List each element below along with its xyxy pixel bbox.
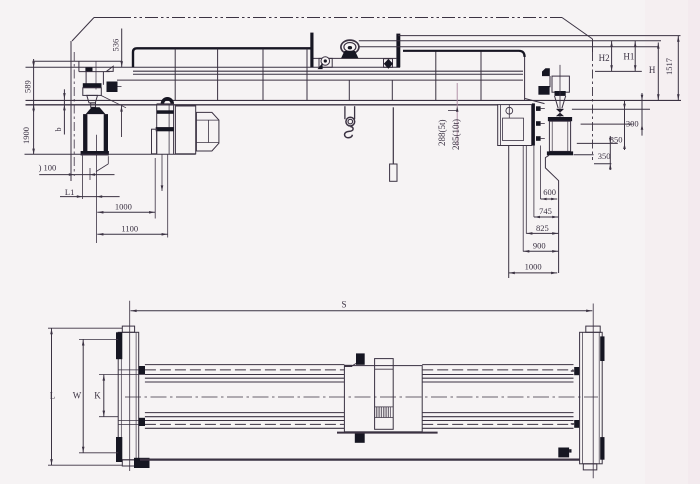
svg-text:1000: 1000 xyxy=(525,261,542,271)
svg-text:H2: H2 xyxy=(599,53,610,63)
svg-text:L: L xyxy=(50,391,56,401)
svg-text:536: 536 xyxy=(110,39,120,52)
svg-text:1900: 1900 xyxy=(21,127,31,144)
svg-text:S: S xyxy=(342,300,347,310)
svg-text:H1: H1 xyxy=(623,51,634,61)
svg-text:900: 900 xyxy=(533,241,546,251)
svg-text:285(10t): 285(10t) xyxy=(451,119,461,150)
svg-text:300: 300 xyxy=(626,118,639,128)
svg-text:H: H xyxy=(649,65,656,75)
svg-text:600: 600 xyxy=(543,187,556,197)
svg-text:W: W xyxy=(73,391,82,401)
svg-text:1000: 1000 xyxy=(115,202,132,212)
svg-text:589: 589 xyxy=(23,80,33,93)
svg-text:b: b xyxy=(54,128,63,132)
svg-text:) 100: ) 100 xyxy=(39,162,57,172)
svg-text:825: 825 xyxy=(536,223,549,233)
svg-text:K: K xyxy=(94,391,101,401)
svg-text:1517: 1517 xyxy=(664,58,674,75)
svg-text:745: 745 xyxy=(539,206,552,216)
svg-text:350: 350 xyxy=(610,135,623,145)
svg-text:288(5t): 288(5t) xyxy=(437,120,447,147)
svg-text:1100: 1100 xyxy=(121,223,138,233)
svg-text:350: 350 xyxy=(598,151,611,161)
svg-text:L1: L1 xyxy=(65,187,74,197)
